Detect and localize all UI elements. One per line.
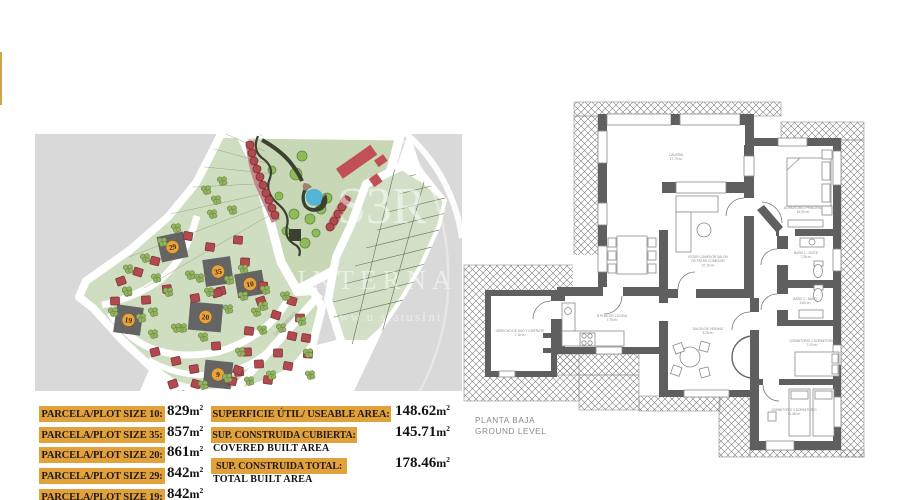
svg-text:PLANTA BAJA: PLANTA BAJA: [475, 416, 535, 425]
svg-text:7.16 m²: 7.16 m²: [515, 333, 526, 337]
svg-text:27.16 m²: 27.16 m²: [702, 263, 715, 267]
svg-text:16.00 m²: 16.00 m²: [797, 210, 810, 214]
svg-text:5.80 m²: 5.80 m²: [800, 301, 811, 305]
svg-text:8.78 m²: 8.78 m²: [703, 331, 714, 335]
svg-text:7.75 m²: 7.75 m²: [607, 318, 618, 322]
svg-text:GROUND LEVEL: GROUND LEVEL: [475, 427, 546, 436]
svg-text:17.70 m²: 17.70 m²: [670, 157, 683, 161]
svg-text:11.48 m²: 11.48 m²: [788, 412, 800, 416]
svg-text:7.03 m²: 7.03 m²: [807, 343, 818, 347]
svg-text:7.26 m²: 7.26 m²: [801, 255, 812, 259]
